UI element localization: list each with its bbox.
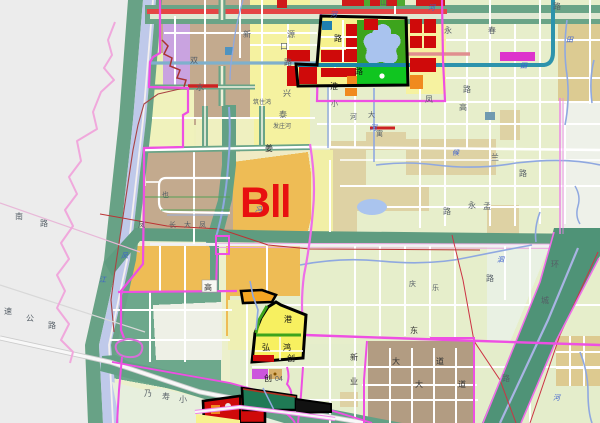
svg-text:南: 南 — [15, 211, 23, 221]
svg-text:路: 路 — [443, 206, 451, 216]
svg-text:源: 源 — [287, 30, 295, 39]
svg-text:高: 高 — [459, 102, 467, 112]
svg-text:也: 也 — [162, 190, 169, 199]
svg-text:高: 高 — [204, 282, 212, 292]
svg-text:速: 速 — [4, 307, 12, 316]
svg-text:庆: 庆 — [409, 279, 416, 288]
svg-text:泰: 泰 — [279, 109, 287, 119]
svg-text:路: 路 — [486, 273, 494, 283]
svg-text:大: 大 — [415, 379, 423, 389]
svg-text:公: 公 — [26, 314, 34, 323]
svg-text:长: 长 — [169, 220, 176, 229]
svg-text:孟: 孟 — [483, 201, 491, 211]
svg-text:兴: 兴 — [283, 89, 291, 98]
svg-text:寿: 寿 — [162, 391, 170, 401]
svg-text:小: 小 — [331, 99, 338, 108]
svg-text:永: 永 — [444, 25, 452, 35]
svg-text:乃: 乃 — [144, 389, 152, 398]
svg-text:04: 04 — [275, 376, 283, 383]
svg-text:筑住鸿: 筑住鸿 — [253, 98, 271, 106]
svg-text:新: 新 — [350, 352, 358, 362]
svg-text:永: 永 — [468, 200, 476, 210]
svg-text:口: 口 — [280, 42, 288, 51]
svg-text:凤: 凤 — [425, 95, 433, 104]
svg-text:发庄河: 发庄河 — [273, 122, 291, 130]
svg-text:路: 路 — [519, 168, 527, 178]
svg-text:东: 东 — [410, 325, 418, 335]
svg-text:鸿: 鸿 — [283, 342, 291, 352]
svg-text:兰: 兰 — [491, 152, 499, 162]
svg-text:创: 创 — [264, 373, 272, 383]
svg-text:寓: 寓 — [376, 129, 383, 138]
svg-text:江: 江 — [99, 276, 107, 284]
svg-text:田: 田 — [520, 62, 528, 70]
svg-text:路: 路 — [502, 373, 510, 383]
svg-text:港: 港 — [284, 314, 292, 324]
svg-text:路: 路 — [40, 218, 48, 228]
svg-text:道: 道 — [436, 356, 444, 366]
svg-text:春: 春 — [488, 25, 496, 35]
svg-text:路: 路 — [553, 1, 561, 11]
svg-text:创: 创 — [287, 353, 295, 363]
svg-text:凤: 凤 — [199, 221, 206, 229]
svg-text:路: 路 — [463, 84, 471, 94]
svg-text:大: 大 — [184, 220, 191, 229]
svg-text:小: 小 — [179, 395, 187, 404]
svg-text:弘: 弘 — [262, 343, 270, 352]
svg-text:冯: 冯 — [255, 206, 263, 214]
svg-text:新: 新 — [243, 29, 251, 39]
svg-text:泗: 泗 — [497, 256, 505, 264]
svg-text:环: 环 — [551, 260, 559, 269]
svg-text:大: 大 — [392, 356, 400, 366]
svg-text:候: 候 — [452, 149, 460, 157]
svg-text:田: 田 — [566, 36, 574, 44]
svg-text:水: 水 — [196, 82, 204, 92]
svg-text:城: 城 — [541, 296, 549, 305]
svg-text:山: 山 — [380, 0, 388, 7]
svg-text:业: 业 — [350, 376, 358, 386]
svg-text:姜: 姜 — [265, 143, 273, 153]
svg-text:淮: 淮 — [330, 81, 338, 91]
svg-text:路: 路 — [48, 320, 56, 330]
svg-text:路: 路 — [334, 33, 342, 43]
svg-text:路: 路 — [284, 57, 292, 67]
svg-text:河: 河 — [350, 113, 357, 121]
svg-text:大: 大 — [368, 110, 375, 119]
svg-text:道: 道 — [458, 379, 466, 389]
svg-text:乐: 乐 — [432, 283, 439, 292]
svg-text:路: 路 — [355, 66, 363, 76]
svg-text:凤: 凤 — [121, 252, 129, 260]
svg-text:B: B — [240, 179, 271, 227]
svg-text:凤: 凤 — [138, 221, 145, 229]
svg-text:双: 双 — [190, 56, 198, 65]
